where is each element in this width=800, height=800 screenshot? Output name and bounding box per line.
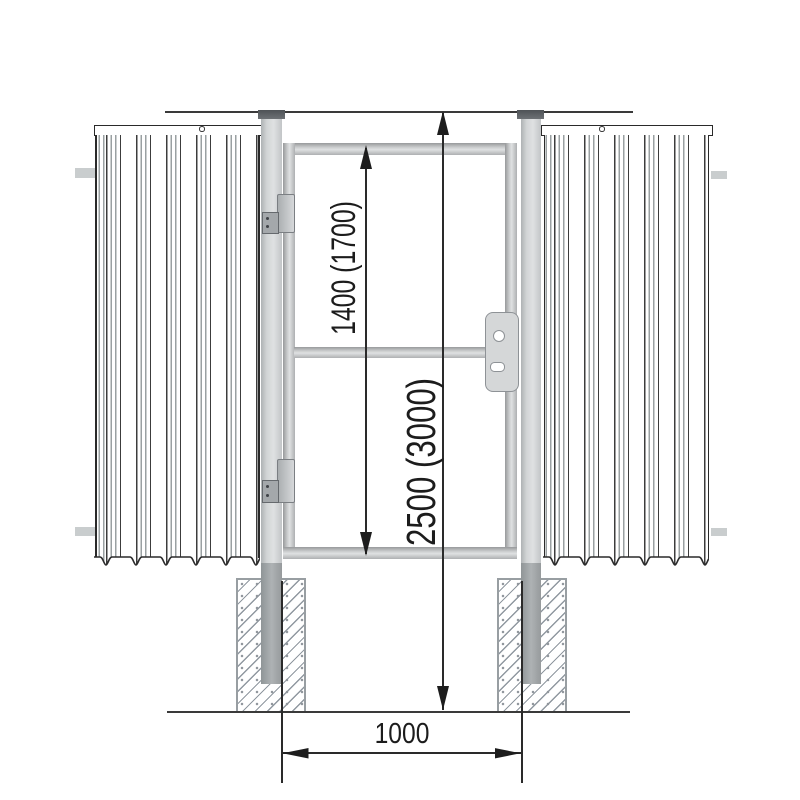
gate-post-left-cap [258, 110, 285, 120]
dim-post-length-arrow-bottom [437, 686, 449, 710]
fence-panel-left-screw [199, 126, 205, 132]
gate-frame-top-rail [283, 143, 517, 155]
dim-gate-height-label: 1400 (1700) [326, 188, 362, 349]
hinge-top-gate-plate [277, 194, 295, 233]
fence-panel-right-sheet [545, 135, 708, 568]
dim-gate-height-line [365, 148, 367, 554]
fence-panel-left-edge-l [95, 135, 97, 558]
lock-cylinder-hole [493, 330, 505, 342]
fence-panel-right-screw [599, 126, 605, 132]
fence-rail-stub-right-upper [711, 171, 727, 179]
fence-panel-left-bottom-wave [94, 549, 260, 575]
fence-rail-stub-left-upper [75, 168, 95, 178]
dim-opening-label: 1000 [351, 720, 453, 748]
fence-panel-right-bottom-wave [543, 549, 709, 575]
dim-opening-arrow-left [283, 748, 309, 759]
gate-post-left-buried [261, 561, 282, 684]
fence-panel-left-sheet [97, 135, 259, 568]
fence-panel-right-edge-r [708, 135, 710, 558]
lock-strike-plate [485, 312, 519, 392]
fence-panel-left-edge-r [258, 135, 260, 558]
dim-post-length-label: 2500 (3000) [402, 363, 440, 561]
gate-post-right-buried [521, 561, 542, 684]
hinge-bolt-icon [266, 494, 269, 497]
hinge-bottom-post-plate [262, 480, 279, 503]
fence-rail-stub-right-lower [711, 528, 727, 536]
gate-post-right-cap [517, 110, 544, 120]
gate-frame-bottom-rail [283, 547, 517, 559]
fence-panel-right-top-rail [541, 125, 713, 136]
hinge-bolt-icon [266, 485, 269, 488]
ground-line-bottom [167, 711, 630, 713]
fence-panel-left-top-rail [94, 125, 262, 136]
ground-line-top [165, 111, 633, 113]
fence-rail-stub-left-lower [75, 527, 95, 536]
dim-opening-ext-right [521, 581, 523, 783]
hinge-bottom-gate-plate [277, 459, 295, 503]
gate-installation-drawing: 1400 (1700) 2500 (3000) 1000 [0, 0, 800, 800]
hinge-bolt-icon [266, 225, 269, 228]
hinge-bolt-icon [266, 217, 269, 220]
dim-post-length-arrow-top [437, 111, 449, 135]
gate-frame-middle-rail [294, 347, 506, 358]
dim-opening-arrow-right [495, 748, 521, 759]
hinge-top-post-plate [262, 212, 279, 234]
lock-latch-slot [490, 362, 505, 372]
dim-opening-line [282, 752, 521, 754]
gate-post-right [521, 119, 542, 563]
fence-panel-right-edge-l [544, 135, 546, 558]
